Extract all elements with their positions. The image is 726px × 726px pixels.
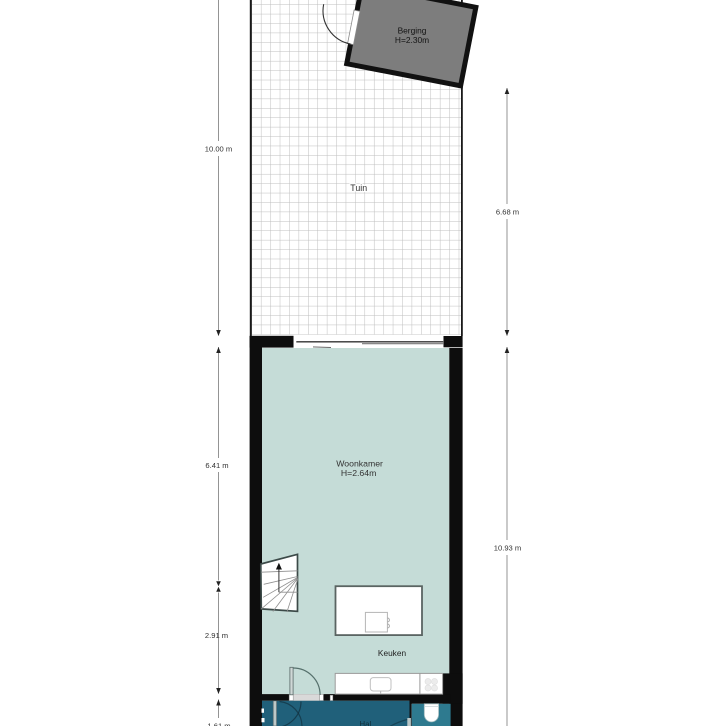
svg-text:Woonkamer: Woonkamer — [336, 459, 383, 469]
svg-text:6.41 m: 6.41 m — [205, 461, 228, 470]
svg-text:1.61 m: 1.61 m — [207, 721, 230, 726]
svg-text:10.93 m: 10.93 m — [494, 544, 521, 553]
svg-text:Tuin: Tuin — [350, 183, 367, 193]
svg-text:10.00 m: 10.00 m — [205, 145, 232, 154]
svg-text:H=2.30m: H=2.30m — [395, 35, 429, 45]
svg-text:Keuken: Keuken — [378, 648, 407, 658]
svg-text:6.68 m: 6.68 m — [496, 208, 519, 217]
svg-text:2.91 m: 2.91 m — [205, 631, 228, 640]
svg-text:Berging: Berging — [398, 26, 427, 36]
svg-text:Hal: Hal — [359, 720, 371, 726]
svg-text:H=2.64m: H=2.64m — [341, 468, 377, 478]
